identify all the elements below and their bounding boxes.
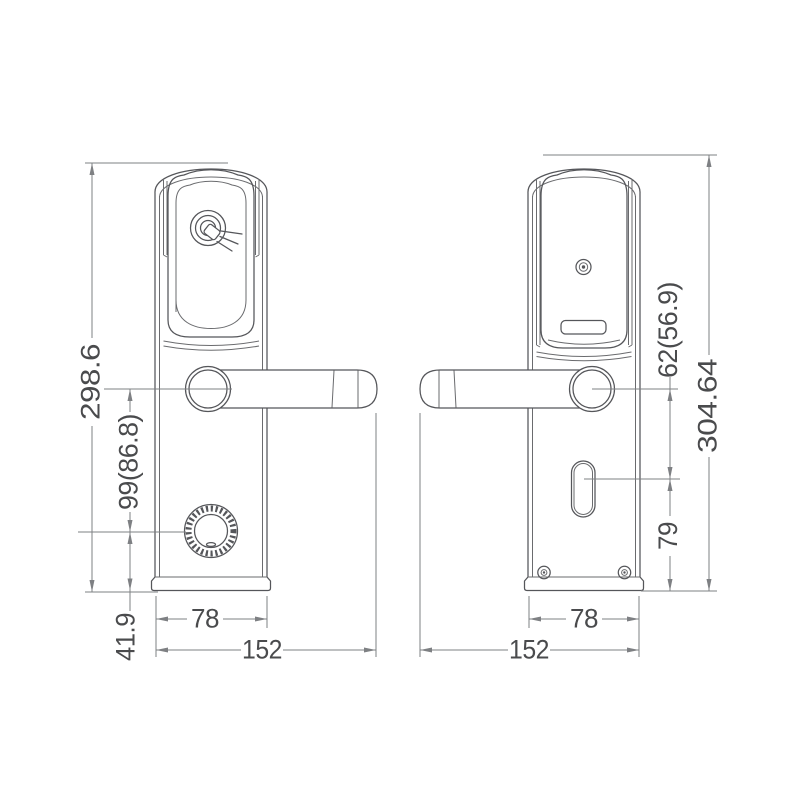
rfid-signal-waves bbox=[217, 231, 242, 251]
dim-label-front-handle-to-knob: 99(86.8) bbox=[114, 414, 144, 510]
dim-front-overall-width: 152 bbox=[156, 635, 376, 665]
screw-hole-icon bbox=[576, 260, 591, 275]
dim-back-handle-to-keyhole: 62(56.9) bbox=[653, 282, 683, 479]
back-cover-bottom-inner-arc bbox=[548, 340, 620, 344]
back-lever-bar bbox=[420, 370, 592, 408]
screw-hole-dot bbox=[582, 265, 585, 268]
front-card-module-outer bbox=[168, 170, 254, 337]
dim-back-plate-width: 78 bbox=[529, 604, 639, 634]
lock-technical-drawing-page: 298.6 99(86.8) 41.9 78 152 bbox=[0, 0, 800, 800]
screw-dot bbox=[623, 571, 625, 573]
rfid-card-reader-icon bbox=[191, 211, 243, 252]
dim-label-front-knob-to-bottom: 41.9 bbox=[111, 613, 141, 661]
dim-front-overall-height: 298.6 bbox=[76, 163, 106, 592]
dim-label-front-plate-width: 78 bbox=[191, 604, 219, 634]
dim-label-back-overall-width: 152 bbox=[509, 635, 549, 665]
dim-label-back-plate-width: 78 bbox=[570, 604, 598, 634]
front-under-module-arcs bbox=[164, 341, 260, 350]
front-right-rail bbox=[256, 179, 260, 257]
back-right-rail bbox=[629, 179, 633, 347]
back-left-rail bbox=[537, 179, 541, 347]
dim-back-overall-width: 152 bbox=[420, 635, 639, 665]
back-lever-handle bbox=[420, 367, 615, 412]
dim-label-front-overall-width: 152 bbox=[242, 635, 282, 665]
back-view bbox=[420, 169, 644, 591]
front-view bbox=[152, 169, 378, 591]
dim-label-back-keyhole-to-bottom: 79 bbox=[653, 522, 683, 550]
dim-label-back-handle-to-keyhole: 62(56.9) bbox=[653, 282, 683, 378]
dim-front-handle-to-knob: 99(86.8) bbox=[114, 389, 144, 532]
rfid-card bbox=[203, 223, 221, 240]
dimension-annotations: 298.6 99(86.8) 41.9 78 152 bbox=[76, 155, 723, 665]
back-cap-inner-arc bbox=[532, 177, 635, 198]
dim-back-keyhole-to-bottom: 79 bbox=[653, 479, 683, 591]
back-cover-outline bbox=[541, 170, 627, 348]
dim-label-back-overall-height: 304.64 bbox=[693, 358, 723, 453]
back-under-module-arcs bbox=[537, 352, 632, 361]
lock-technical-drawing: 298.6 99(86.8) 41.9 78 152 bbox=[0, 0, 800, 800]
dim-label-front-overall-height: 298.6 bbox=[76, 344, 106, 420]
dim-front-knob-to-bottom: 41.9 bbox=[111, 532, 141, 661]
battery-slot bbox=[561, 321, 606, 335]
dim-back-overall-height: 304.64 bbox=[693, 155, 723, 591]
front-lever-bar bbox=[208, 370, 377, 408]
dim-front-plate-width: 78 bbox=[156, 604, 267, 634]
front-cap-inner-arc bbox=[159, 177, 262, 198]
front-left-rail bbox=[164, 179, 168, 257]
privacy-knob bbox=[185, 505, 238, 558]
front-card-module-inner bbox=[176, 181, 246, 328]
screw-dot bbox=[543, 571, 545, 573]
keyhole bbox=[572, 461, 596, 517]
